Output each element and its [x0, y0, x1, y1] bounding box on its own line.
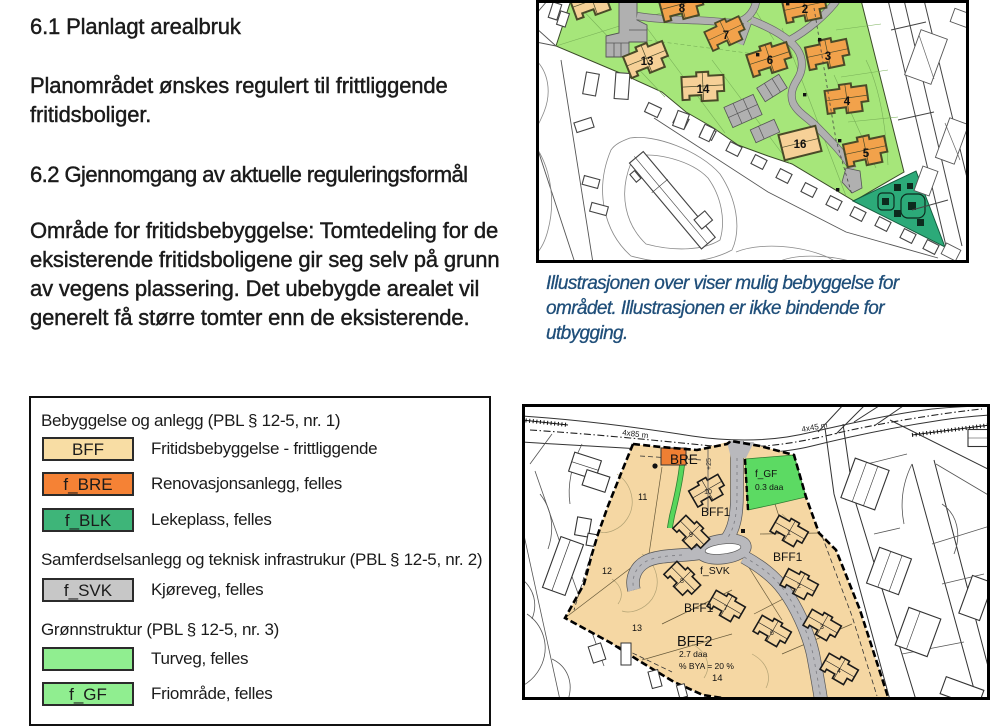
svg-text:12: 12 — [602, 566, 612, 576]
svg-text:13: 13 — [632, 623, 642, 633]
svg-text:2: 2 — [802, 4, 808, 16]
svg-text:2: 2 — [797, 583, 801, 590]
svg-text:4: 4 — [837, 668, 841, 675]
svg-text:11: 11 — [638, 492, 647, 502]
svg-text:6: 6 — [770, 630, 774, 637]
svg-text:BFF2: BFF2 — [677, 634, 712, 650]
svg-text:14: 14 — [712, 673, 723, 684]
svg-text:3: 3 — [825, 51, 831, 63]
svg-text:4: 4 — [844, 96, 851, 108]
svg-text:f_GF: f_GF — [755, 469, 777, 480]
svg-text:0.3 daa: 0.3 daa — [755, 482, 784, 492]
svg-text:% BYA = 20 %: % BYA = 20 % — [679, 661, 734, 671]
svg-text:BRE: BRE — [670, 452, 698, 467]
svg-text:3: 3 — [820, 624, 824, 631]
svg-text:1: 1 — [787, 530, 791, 537]
svg-text:5: 5 — [863, 148, 870, 160]
svg-text:2.7 daa: 2.7 daa — [679, 649, 708, 659]
svg-text:14: 14 — [697, 84, 710, 96]
svg-text:8: 8 — [679, 3, 686, 15]
svg-text:+25: +25 — [706, 458, 713, 470]
svg-text:BFF1: BFF1 — [684, 601, 714, 615]
svg-text:7: 7 — [724, 605, 728, 612]
svg-text:8: 8 — [680, 578, 684, 585]
svg-text:13: 13 — [641, 56, 654, 68]
svg-text:7: 7 — [723, 30, 729, 42]
svg-text:6: 6 — [767, 55, 773, 67]
svg-text:f_SVK: f_SVK — [700, 565, 730, 577]
svg-text:BFF1: BFF1 — [701, 505, 731, 519]
svg-text:BFF1: BFF1 — [773, 550, 803, 564]
svg-text:16: 16 — [794, 139, 807, 151]
svg-text:9: 9 — [689, 532, 693, 539]
